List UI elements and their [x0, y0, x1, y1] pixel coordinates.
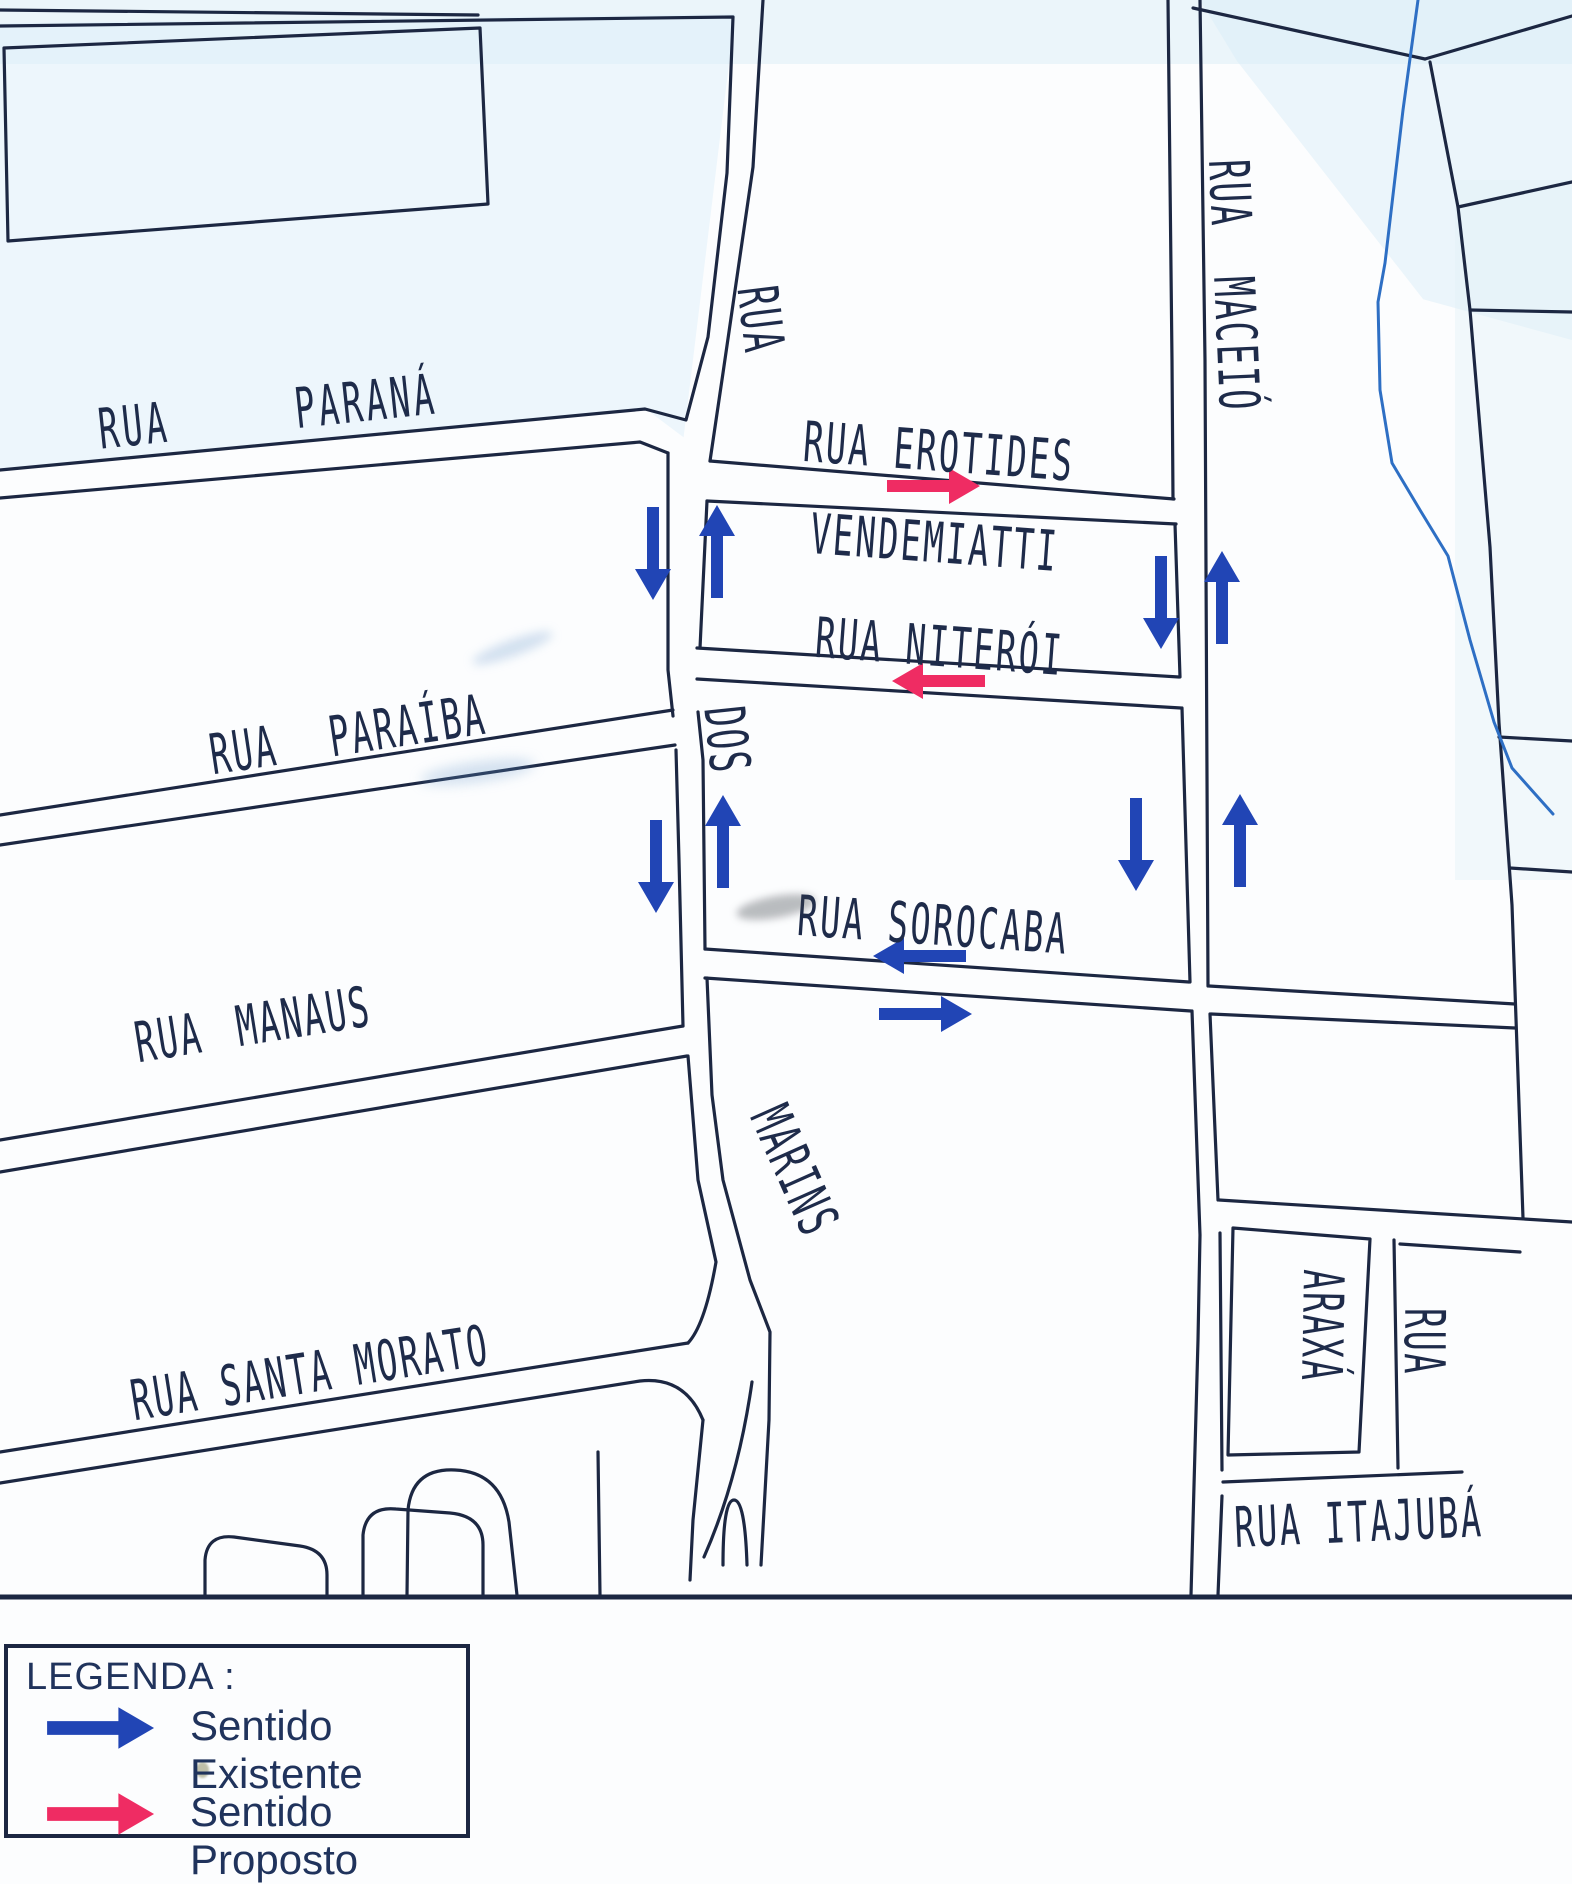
curb-line-right	[598, 1452, 600, 1595]
street-maceio-east-2	[1210, 1014, 1218, 1200]
river-line	[1378, 0, 1553, 814]
arrow-existing-maceio-north-1	[1204, 551, 1240, 644]
parcel-branch-4	[1510, 868, 1572, 872]
arrow-existing-marins-south-2	[638, 820, 674, 913]
legend-item-existing: Sentido Existente	[8, 1702, 466, 1758]
street-label-marins-rua: RUA	[721, 282, 799, 358]
street-maceio-west-2	[1175, 524, 1180, 677]
street-marins-west-2	[676, 750, 683, 1026]
arrow-existing-maceio-north-2	[1222, 794, 1258, 887]
existing-direction-arrow-icon	[38, 1704, 168, 1752]
street-label-maceio: RUA MACEIÓ	[1192, 158, 1273, 414]
curb-arch-c	[407, 1470, 517, 1595]
curb-arch-a	[205, 1537, 327, 1595]
street-marins-split-u	[723, 1500, 747, 1565]
arrow-existing-maceio-south-2	[1118, 798, 1154, 891]
street-east-cross-top	[1219, 1200, 1572, 1222]
street-marins-east-4	[707, 978, 770, 1565]
parcel-ne-b	[1425, 16, 1572, 59]
street-label-rua-east: RUA	[1388, 1308, 1458, 1376]
street-manaus-bottom	[0, 1056, 687, 1172]
curb-arch-b	[363, 1509, 483, 1595]
proposed-direction-arrow-icon	[38, 1790, 168, 1838]
parcel-branch-1	[1458, 182, 1572, 207]
street-maceio-west-3	[1182, 708, 1190, 982]
street-marins-west-4	[690, 1420, 703, 1580]
arrow-existing-sorocaba-east	[879, 996, 972, 1032]
street-marins-east-1	[710, 0, 763, 461]
street-label-dos: DOS	[687, 703, 764, 778]
parcel-boundary-long	[1430, 62, 1523, 1218]
street-maceio-east-3	[1220, 1233, 1222, 1470]
street-maceio-east-4	[1218, 1496, 1222, 1595]
street-marins-west-1	[668, 453, 673, 716]
top-edge-line	[0, 10, 478, 15]
street-maceio-west-4	[1191, 1011, 1200, 1595]
arrow-existing-marins-north-2	[705, 795, 741, 888]
legend-box: LEGENDA : Sentido Existente Sentido Prop…	[4, 1644, 470, 1838]
street-maceio-east-1	[1200, 0, 1208, 986]
street-label-itajuba: RUA ITAJUBÁ	[1233, 1483, 1485, 1564]
parcel-branch-2	[1470, 310, 1572, 312]
parcel-branch-3	[1499, 737, 1572, 741]
street-marins-east-2	[700, 501, 707, 648]
street-east-cross-bottom-seg	[1400, 1244, 1520, 1252]
scanned-street-map: RUA PARANÁ RUA EROTIDES VENDEMIATTI RUA …	[0, 0, 1572, 1836]
parcel-ne-a	[1193, 8, 1425, 59]
parcel-topleft	[4, 28, 488, 241]
street-sorocaba-east-top	[1209, 986, 1515, 1004]
legend-title: LEGENDA :	[26, 1656, 236, 1699]
arrow-existing-maceio-south-1	[1143, 556, 1179, 649]
street-sorocaba-east-bottom	[1211, 1014, 1515, 1028]
legend-label-proposed: Sentido Proposto	[190, 1788, 466, 1884]
street-label-araxa: ARAXÁ	[1285, 1269, 1357, 1383]
street-itajuba-top	[1223, 1472, 1462, 1482]
street-maceio-west-1	[1168, 0, 1173, 499]
map-canvas	[0, 0, 1572, 1836]
legend-label-existing: Sentido Existente	[190, 1702, 466, 1798]
arrow-existing-marins-south-1	[635, 507, 671, 600]
